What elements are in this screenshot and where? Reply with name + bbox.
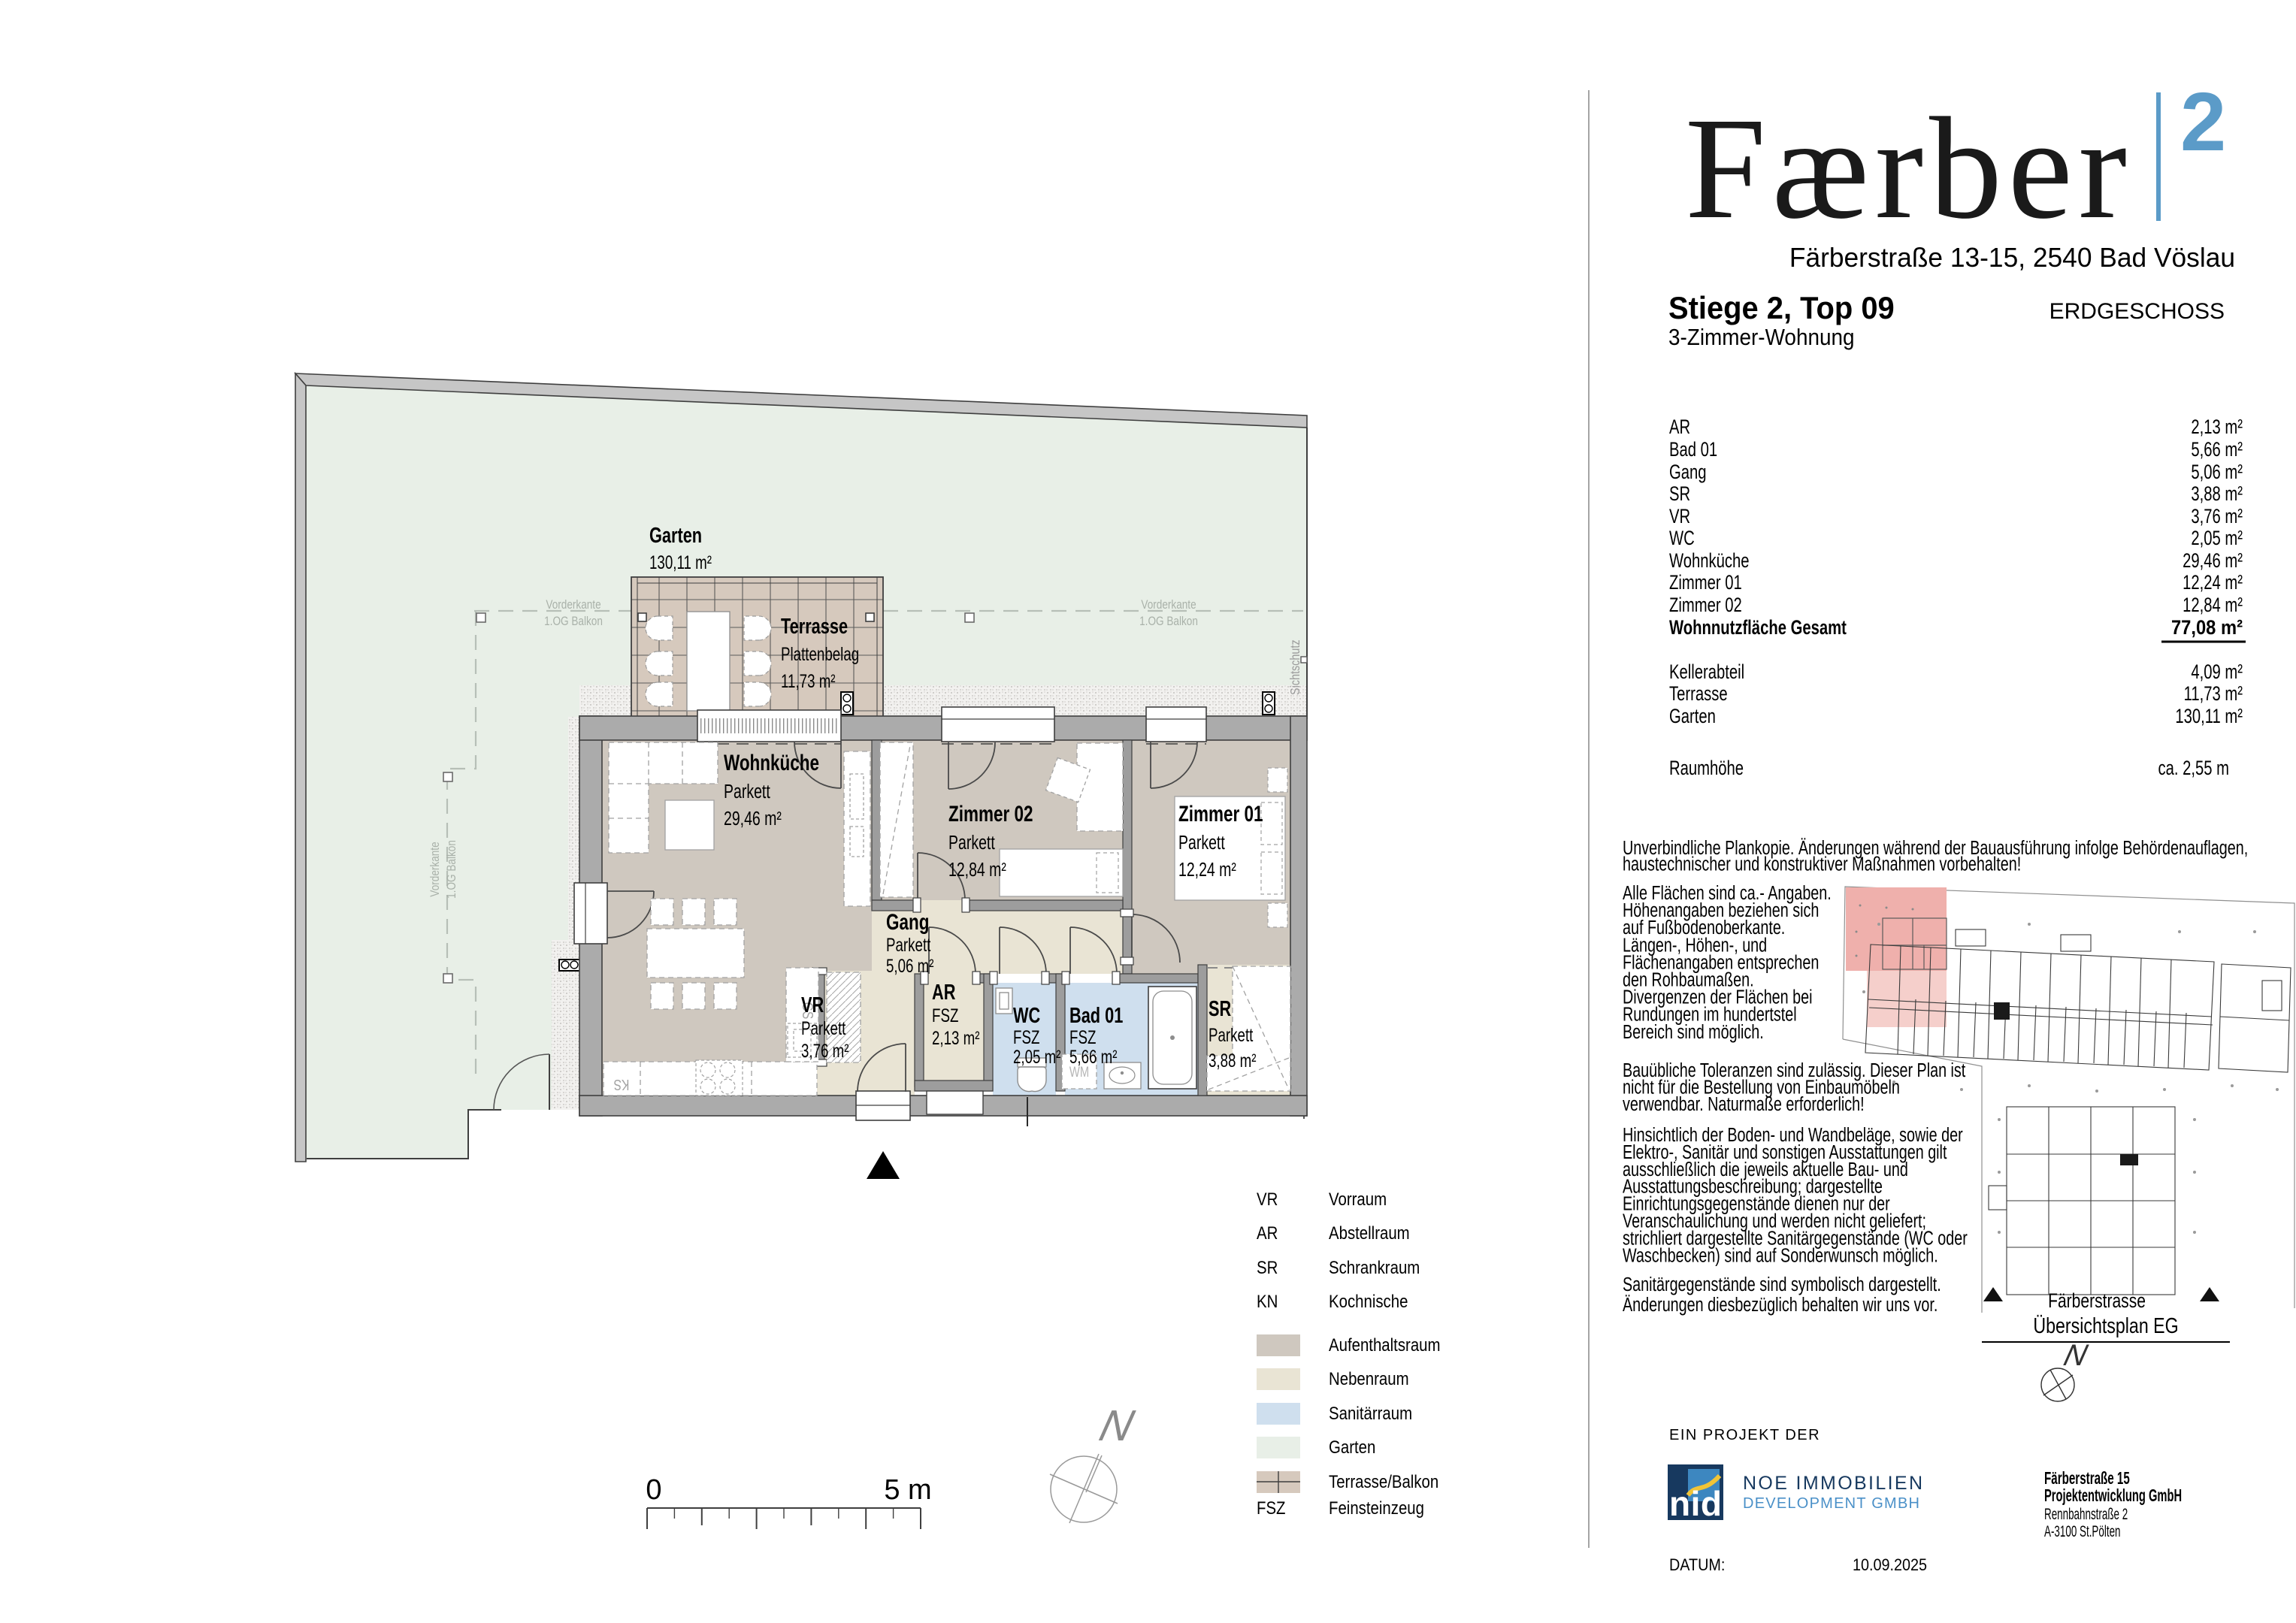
- svg-text:Parkett: Parkett: [1178, 831, 1225, 853]
- svg-text:12,84 m²: 12,84 m²: [948, 858, 1006, 880]
- svg-text:Sanitärraum: Sanitärraum: [1329, 1403, 1412, 1423]
- svg-text:Projektentwicklung GmbH: Projektentwicklung GmbH: [2044, 1487, 2182, 1506]
- svg-text:2,05 m²: 2,05 m²: [2191, 527, 2243, 550]
- svg-text:Terrasse/Balkon: Terrasse/Balkon: [1329, 1471, 1438, 1492]
- svg-text:Wohnküche: Wohnküche: [1669, 549, 1750, 573]
- svg-text:FSZ: FSZ: [1069, 1026, 1096, 1047]
- svg-text:12,24 m²: 12,24 m²: [1178, 858, 1236, 880]
- svg-text:Bad 01: Bad 01: [1069, 1004, 1123, 1028]
- svg-text:Aufenthaltsraum: Aufenthaltsraum: [1329, 1334, 1441, 1355]
- svg-text:130,11 m²: 130,11 m²: [649, 552, 712, 573]
- svg-text:Wohnküche: Wohnküche: [724, 750, 819, 775]
- svg-text:12,84 m²: 12,84 m²: [2183, 594, 2243, 617]
- svg-text:Färberstraße 13-15, 2540 Bad V: Färberstraße 13-15, 2540 Bad Vöslau: [1789, 243, 2235, 273]
- svg-text:KS: KS: [614, 1077, 630, 1093]
- svg-text:Zimmer 01: Zimmer 01: [1669, 571, 1742, 594]
- svg-text:5 m: 5 m: [884, 1474, 931, 1506]
- svg-text:Garten: Garten: [1669, 705, 1716, 728]
- svg-text:Gang: Gang: [886, 909, 929, 935]
- svg-text:N: N: [2061, 1338, 2092, 1372]
- svg-text:12,24 m²: 12,24 m²: [2183, 571, 2243, 594]
- svg-text:Raumhöhe: Raumhöhe: [1669, 757, 1744, 780]
- svg-text:NOE IMMOBILIEN: NOE IMMOBILIEN: [1743, 1473, 1924, 1494]
- svg-text:Färberstraße 15: Färberstraße 15: [2044, 1469, 2130, 1489]
- svg-text:AR: AR: [932, 981, 955, 1005]
- svg-text:Parkett: Parkett: [724, 780, 770, 802]
- svg-text:Waschbecken) sind auf Sonderwu: Waschbecken) sind auf Sonderwunsch mögli…: [1623, 1244, 1938, 1266]
- svg-text:Parkett: Parkett: [801, 1017, 845, 1038]
- svg-text:10.09.2025: 10.09.2025: [1853, 1556, 1927, 1574]
- svg-text:Abstellraum: Abstellraum: [1329, 1223, 1410, 1243]
- svg-text:Parkett: Parkett: [1209, 1024, 1253, 1045]
- svg-text:Wohnnutzfläche Gesamt: Wohnnutzfläche Gesamt: [1669, 616, 1847, 639]
- svg-text:Sichtschutz: Sichtschutz: [1288, 639, 1303, 695]
- svg-text:Garten: Garten: [1329, 1437, 1375, 1457]
- svg-text:VR: VR: [1257, 1189, 1278, 1209]
- svg-text:1.OG Balkon: 1.OG Balkon: [544, 615, 603, 629]
- svg-text:3,88 m²: 3,88 m²: [1209, 1050, 1257, 1071]
- svg-text:FSZ: FSZ: [1013, 1026, 1039, 1047]
- svg-text:Bad 01: Bad 01: [1669, 438, 1717, 461]
- svg-text:haustechnischer und konstrukti: haustechnischer und konstruktiver Maßnah…: [1623, 853, 2021, 875]
- svg-text:Kochnische: Kochnische: [1329, 1291, 1408, 1311]
- svg-text:5,06 m²: 5,06 m²: [886, 955, 934, 976]
- svg-text:Zimmer 02: Zimmer 02: [948, 801, 1033, 827]
- svg-text:FSZ: FSZ: [1257, 1498, 1286, 1518]
- svg-text:SR: SR: [1257, 1257, 1278, 1277]
- svg-text:Plattenbelag: Plattenbelag: [781, 643, 859, 664]
- svg-text:Änderungen diesbezüglich behal: Änderungen diesbezüglich behalten wir un…: [1623, 1293, 1938, 1315]
- svg-text:Garten: Garten: [649, 524, 702, 548]
- svg-text:Schrankraum: Schrankraum: [1329, 1257, 1420, 1277]
- svg-text:29,46 m²: 29,46 m²: [2183, 549, 2243, 573]
- svg-text:EIN PROJEKT DER: EIN PROJEKT DER: [1669, 1427, 1820, 1443]
- svg-text:29,46 m²: 29,46 m²: [724, 807, 782, 829]
- svg-text:Terrasse: Terrasse: [1669, 682, 1728, 706]
- svg-text:Bereich sind möglich.: Bereich sind möglich.: [1623, 1020, 1764, 1042]
- svg-text:2,13 m²: 2,13 m²: [2191, 416, 2243, 439]
- svg-text:Feinsteinzeug: Feinsteinzeug: [1329, 1498, 1424, 1518]
- svg-text:Nebenraum: Nebenraum: [1329, 1368, 1409, 1389]
- svg-text:Stiege 2, Top 09: Stiege 2, Top 09: [1668, 290, 1895, 325]
- svg-text:WC: WC: [1669, 527, 1695, 550]
- svg-text:Übersichtsplan EG: Übersichtsplan EG: [2033, 1313, 2178, 1337]
- svg-text:Kellerabteil: Kellerabteil: [1669, 660, 1744, 684]
- svg-text:Gang: Gang: [1669, 461, 1707, 484]
- svg-text:SR: SR: [1209, 997, 1231, 1021]
- svg-text:VR: VR: [801, 993, 824, 1017]
- svg-text:Rennbahnstraße 2: Rennbahnstraße 2: [2044, 1505, 2128, 1523]
- svg-text:11,73 m²: 11,73 m²: [2184, 682, 2243, 706]
- svg-text:11,73 m²: 11,73 m²: [781, 670, 836, 691]
- svg-text:verwendbar. Naturmaße erforder: verwendbar. Naturmaße erforderlich!: [1623, 1093, 1865, 1114]
- svg-text:AR: AR: [1669, 416, 1690, 439]
- svg-text:2,13 m²: 2,13 m²: [932, 1027, 980, 1048]
- svg-text:Vorderkante: Vorderkante: [428, 842, 443, 896]
- svg-text:0: 0: [646, 1474, 661, 1506]
- svg-text:VR: VR: [1669, 505, 1690, 528]
- svg-text:77,08 m²: 77,08 m²: [2171, 617, 2243, 639]
- svg-text:FSZ: FSZ: [932, 1005, 958, 1026]
- svg-text:AR: AR: [1257, 1223, 1278, 1243]
- svg-text:4,09 m²: 4,09 m²: [2191, 660, 2243, 684]
- svg-text:3-Zimmer-Wohnung: 3-Zimmer-Wohnung: [1668, 325, 1855, 351]
- svg-text:ca. 2,55 m: ca. 2,55 m: [2158, 757, 2229, 780]
- svg-text:Zimmer 02: Zimmer 02: [1669, 594, 1742, 617]
- svg-text:130,11 m²: 130,11 m²: [2175, 705, 2243, 728]
- svg-text:3,76 m²: 3,76 m²: [801, 1040, 849, 1061]
- svg-text:3,88 m²: 3,88 m²: [2191, 482, 2243, 506]
- svg-text:Færber: Færber: [1685, 87, 2127, 249]
- svg-text:nid: nid: [1669, 1484, 1722, 1523]
- svg-text:Vorraum: Vorraum: [1329, 1189, 1387, 1209]
- svg-text:2,05 m²: 2,05 m²: [1013, 1046, 1061, 1067]
- svg-text:2: 2: [2180, 76, 2226, 168]
- svg-text:Sanitärgegenstände sind symbol: Sanitärgegenstände sind symbolisch darge…: [1623, 1273, 1941, 1295]
- svg-text:N: N: [1095, 1402, 1139, 1450]
- svg-text:3,76 m²: 3,76 m²: [2191, 505, 2243, 528]
- svg-text:A-3100 St.Pölten: A-3100 St.Pölten: [2044, 1522, 2120, 1540]
- svg-text:5,66 m²: 5,66 m²: [1069, 1046, 1118, 1067]
- svg-text:1.OG Balkon: 1.OG Balkon: [1139, 615, 1198, 629]
- svg-text:SR: SR: [1669, 482, 1690, 506]
- svg-text:DEVELOPMENT GMBH: DEVELOPMENT GMBH: [1743, 1495, 1921, 1512]
- svg-text:Vorderkante: Vorderkante: [546, 598, 600, 612]
- svg-text:DATUM:: DATUM:: [1669, 1556, 1725, 1574]
- svg-text:WC: WC: [1013, 1004, 1040, 1028]
- svg-text:Parkett: Parkett: [886, 934, 930, 955]
- svg-text:ERDGESCHOSS: ERDGESCHOSS: [2049, 299, 2225, 324]
- svg-text:Zimmer 01: Zimmer 01: [1178, 801, 1263, 827]
- svg-text:Vorderkante: Vorderkante: [1141, 598, 1196, 612]
- svg-text:Terrasse: Terrasse: [781, 615, 848, 639]
- svg-text:Färberstrasse: Färberstrasse: [2048, 1290, 2146, 1313]
- svg-text:5,06 m²: 5,06 m²: [2191, 461, 2243, 484]
- svg-text:5,66 m²: 5,66 m²: [2191, 438, 2243, 461]
- svg-text:Parkett: Parkett: [948, 831, 995, 853]
- svg-text:KN: KN: [1257, 1291, 1278, 1311]
- svg-text:1.OG Balkon: 1.OG Balkon: [445, 840, 459, 899]
